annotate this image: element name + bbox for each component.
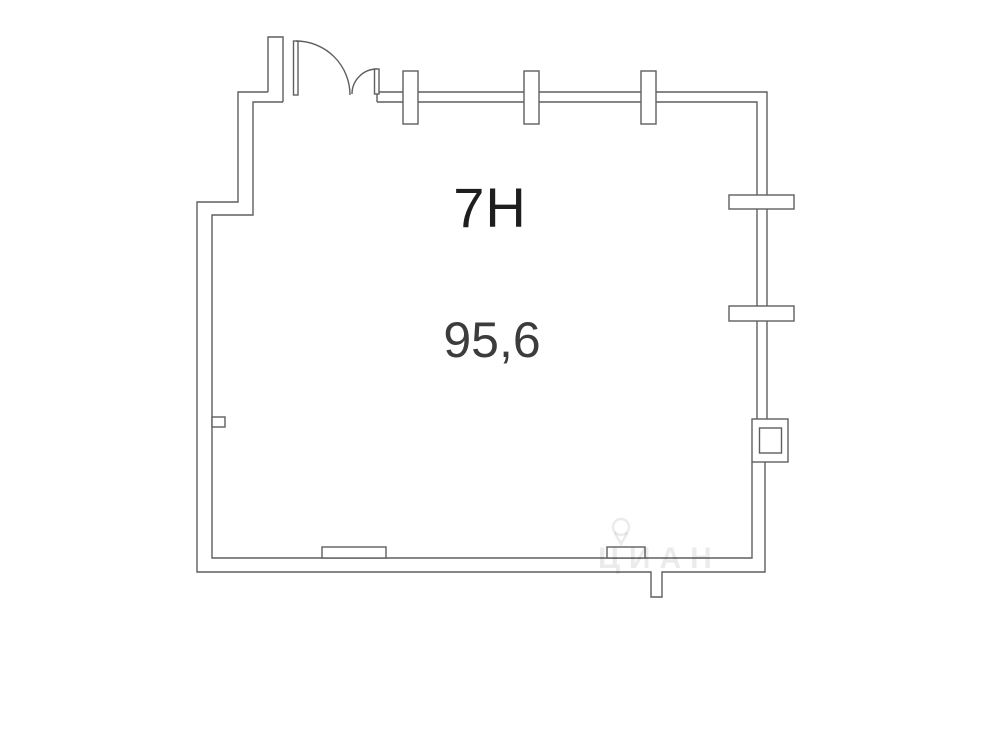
window-mullion-tick-1 <box>403 71 418 124</box>
left-wall-tick <box>212 417 225 427</box>
floor-plan-page: ЦИАН 7Н 95,6 <box>0 0 1000 750</box>
window-mullion-tick-3 <box>641 71 656 124</box>
door-swing-arc-large <box>296 41 350 95</box>
door-swing-arc-small <box>352 69 377 94</box>
wall-outline-outer-top-right <box>377 92 767 419</box>
shaft-box-inner <box>760 428 782 453</box>
window-mullion-tick-2 <box>524 71 539 124</box>
right-wall-tick-2 <box>729 306 794 321</box>
door-leaf-small <box>375 69 380 94</box>
room-area-label: 95,6 <box>443 312 540 368</box>
watermark-label: ЦИАН <box>598 542 721 575</box>
door-leaf-large <box>294 41 299 95</box>
wall-outline-inner-top-right <box>377 102 757 419</box>
radiator-left <box>322 547 386 558</box>
floor-plan-drawing: ЦИАН 7Н 95,6 <box>0 0 1000 750</box>
right-wall-tick-1 <box>729 195 794 209</box>
door-pier <box>268 37 283 102</box>
room-unit-label: 7Н <box>453 176 527 239</box>
watermark: ЦИАН <box>598 519 721 575</box>
